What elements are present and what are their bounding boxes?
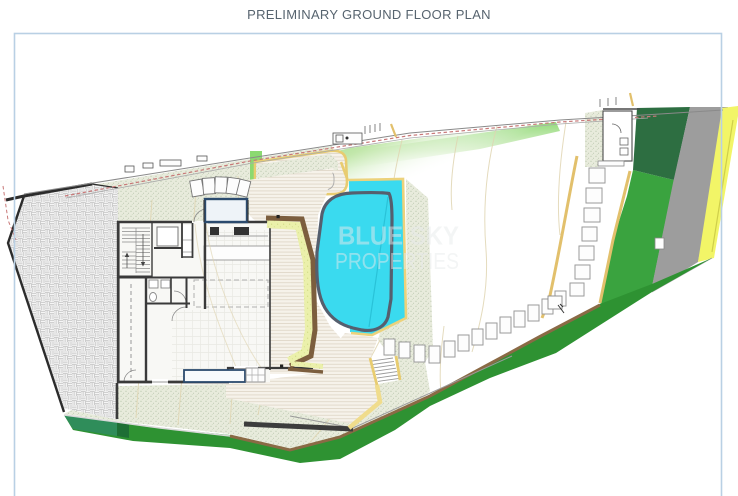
svg-text:PROPERTIES: PROPERTIES [335,248,459,274]
svg-text:BLUE SKY: BLUE SKY [338,221,459,251]
